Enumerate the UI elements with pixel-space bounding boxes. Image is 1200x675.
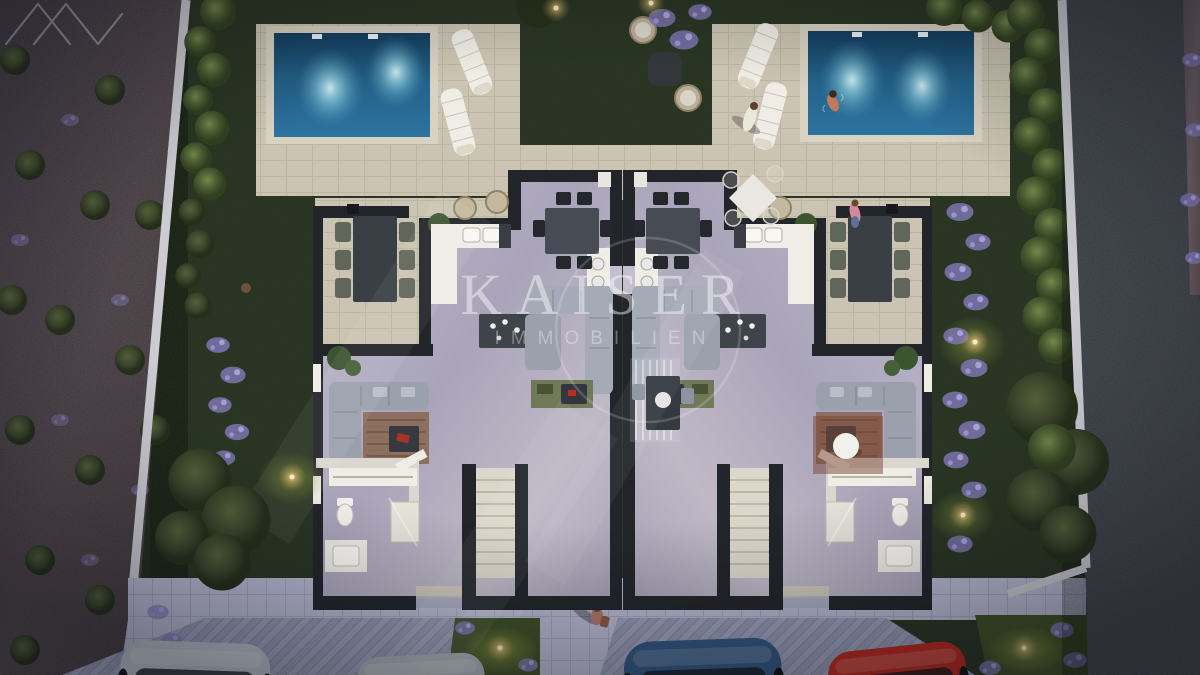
aerial-dusk-render: KAISER IMMOBILIEN (0, 0, 1200, 675)
round-coffee-table (833, 433, 859, 459)
bistro-set (723, 166, 783, 226)
scene-graphics (0, 0, 1200, 675)
car-silver-1 (116, 639, 273, 675)
front-garden-patch-right (975, 615, 1092, 675)
building-semi-detached (239, 166, 932, 675)
car-blue (621, 637, 786, 675)
pool-terrace-right (712, 20, 1010, 196)
pool-terrace-left (256, 24, 520, 196)
